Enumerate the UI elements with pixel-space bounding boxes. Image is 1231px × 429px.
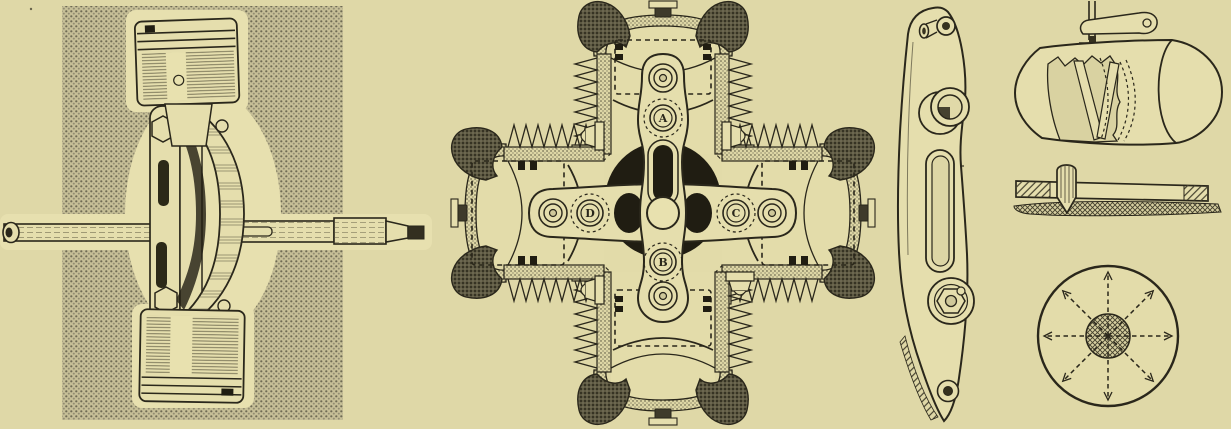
shaft-tip — [408, 226, 424, 239]
keyway — [240, 227, 272, 236]
wall-strip — [1014, 202, 1221, 216]
lever-and-stem — [1079, 1, 1157, 45]
label-b: B — [658, 256, 667, 269]
ring-gap — [145, 25, 155, 32]
label-a: A — [658, 112, 668, 125]
wrist-pin-bottom — [649, 282, 677, 310]
crankpin — [647, 197, 679, 229]
ring-gap — [221, 389, 233, 396]
label-d: D — [585, 207, 595, 220]
hex-boss — [928, 278, 974, 324]
wrist-pin-right — [758, 199, 786, 227]
upper-piston — [135, 18, 240, 106]
cylinder-body — [1015, 40, 1222, 145]
plate-illustration: A B C D — [0, 0, 1231, 429]
wrist-pin-left — [539, 199, 567, 227]
bottom-stud — [938, 381, 959, 402]
label-c: C — [732, 207, 741, 220]
wrist-pin-top — [649, 64, 677, 92]
slot — [926, 150, 954, 272]
fig-rod-pin — [1014, 165, 1221, 216]
small-end-clamp — [165, 104, 212, 146]
fig-piston-crankshaft-photo — [0, 6, 432, 420]
plate: A B C D — [0, 0, 1231, 429]
fig-spoked-disc — [1038, 266, 1178, 406]
fig-cylinder-cutaway — [1015, 1, 1222, 145]
lower-piston — [139, 309, 245, 403]
fig-engine-cross-section: A B C D — [451, 1, 875, 425]
fig-slotted-link — [898, 7, 974, 421]
